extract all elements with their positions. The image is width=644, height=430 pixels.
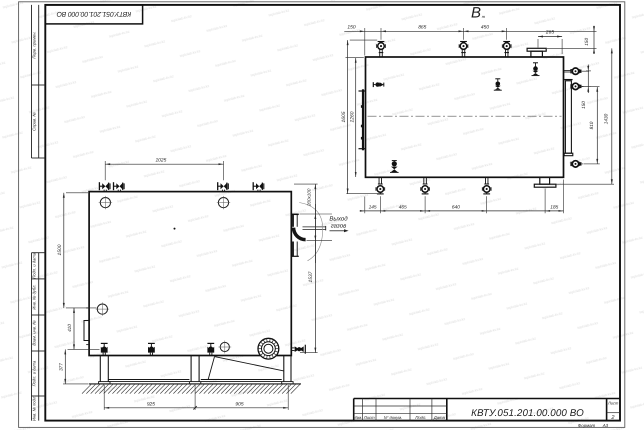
- svg-text:905: 905: [235, 401, 243, 407]
- svg-text:640: 640: [452, 205, 460, 211]
- svg-text:КВТУ.051.201.00.000 ВО: КВТУ.051.201.00.000 ВО: [56, 10, 131, 17]
- svg-text:КВТУ.051.201.00.000 ВО: КВТУ.051.201.00.000 ВО: [471, 408, 584, 419]
- svg-text:145: 145: [369, 205, 377, 211]
- svg-text:Дата: Дата: [433, 415, 446, 420]
- svg-text:150: 150: [584, 38, 589, 46]
- svg-text:Лист: Лист: [607, 401, 619, 406]
- svg-text:150: 150: [581, 101, 586, 109]
- svg-text:925: 925: [147, 401, 155, 407]
- svg-text:810: 810: [589, 121, 594, 129]
- svg-text:газов: газов: [331, 223, 347, 230]
- svg-text:А3: А3: [602, 423, 609, 428]
- svg-text:377: 377: [58, 363, 63, 371]
- svg-text:410: 410: [67, 324, 72, 332]
- svg-text:1260: 1260: [350, 111, 356, 122]
- svg-text:200х100: 200х100: [307, 188, 312, 207]
- svg-text:185: 185: [550, 205, 558, 211]
- svg-text:Подп.: Подп.: [415, 415, 426, 420]
- svg-text:450: 450: [481, 25, 489, 31]
- svg-text:865: 865: [418, 25, 426, 31]
- svg-text:Инв. № дубл.: Инв. № дубл.: [32, 284, 37, 309]
- svg-text:Формат: Формат: [578, 423, 596, 428]
- svg-text:Лист: Лист: [363, 415, 375, 420]
- svg-text:1500: 1500: [57, 244, 63, 255]
- svg-text:1025: 1025: [155, 157, 166, 163]
- svg-text:N° докум.: N° докум.: [384, 415, 403, 420]
- svg-text:265: 265: [545, 30, 554, 36]
- svg-text:1605: 1605: [341, 111, 347, 122]
- svg-text:1537: 1537: [308, 271, 314, 282]
- svg-text:Справ. №: Справ. №: [32, 112, 37, 131]
- svg-text:Подп. и дата: Подп. и дата: [32, 252, 37, 278]
- svg-text:Подп. и дата: Подп. и дата: [32, 360, 37, 386]
- svg-text:Взам. инв. №: Взам. инв. №: [32, 320, 37, 346]
- svg-text:465: 465: [399, 205, 407, 211]
- svg-text:Выход: Выход: [329, 216, 348, 223]
- svg-text:Инв. № подл.: Инв. № подл.: [32, 396, 37, 421]
- svg-text:150: 150: [347, 25, 355, 31]
- svg-text:Перв. примен.: Перв. примен.: [32, 31, 37, 58]
- svg-text:Изм.: Изм.: [354, 415, 363, 420]
- svg-text:В: В: [471, 5, 481, 22]
- svg-text:1430: 1430: [604, 113, 609, 124]
